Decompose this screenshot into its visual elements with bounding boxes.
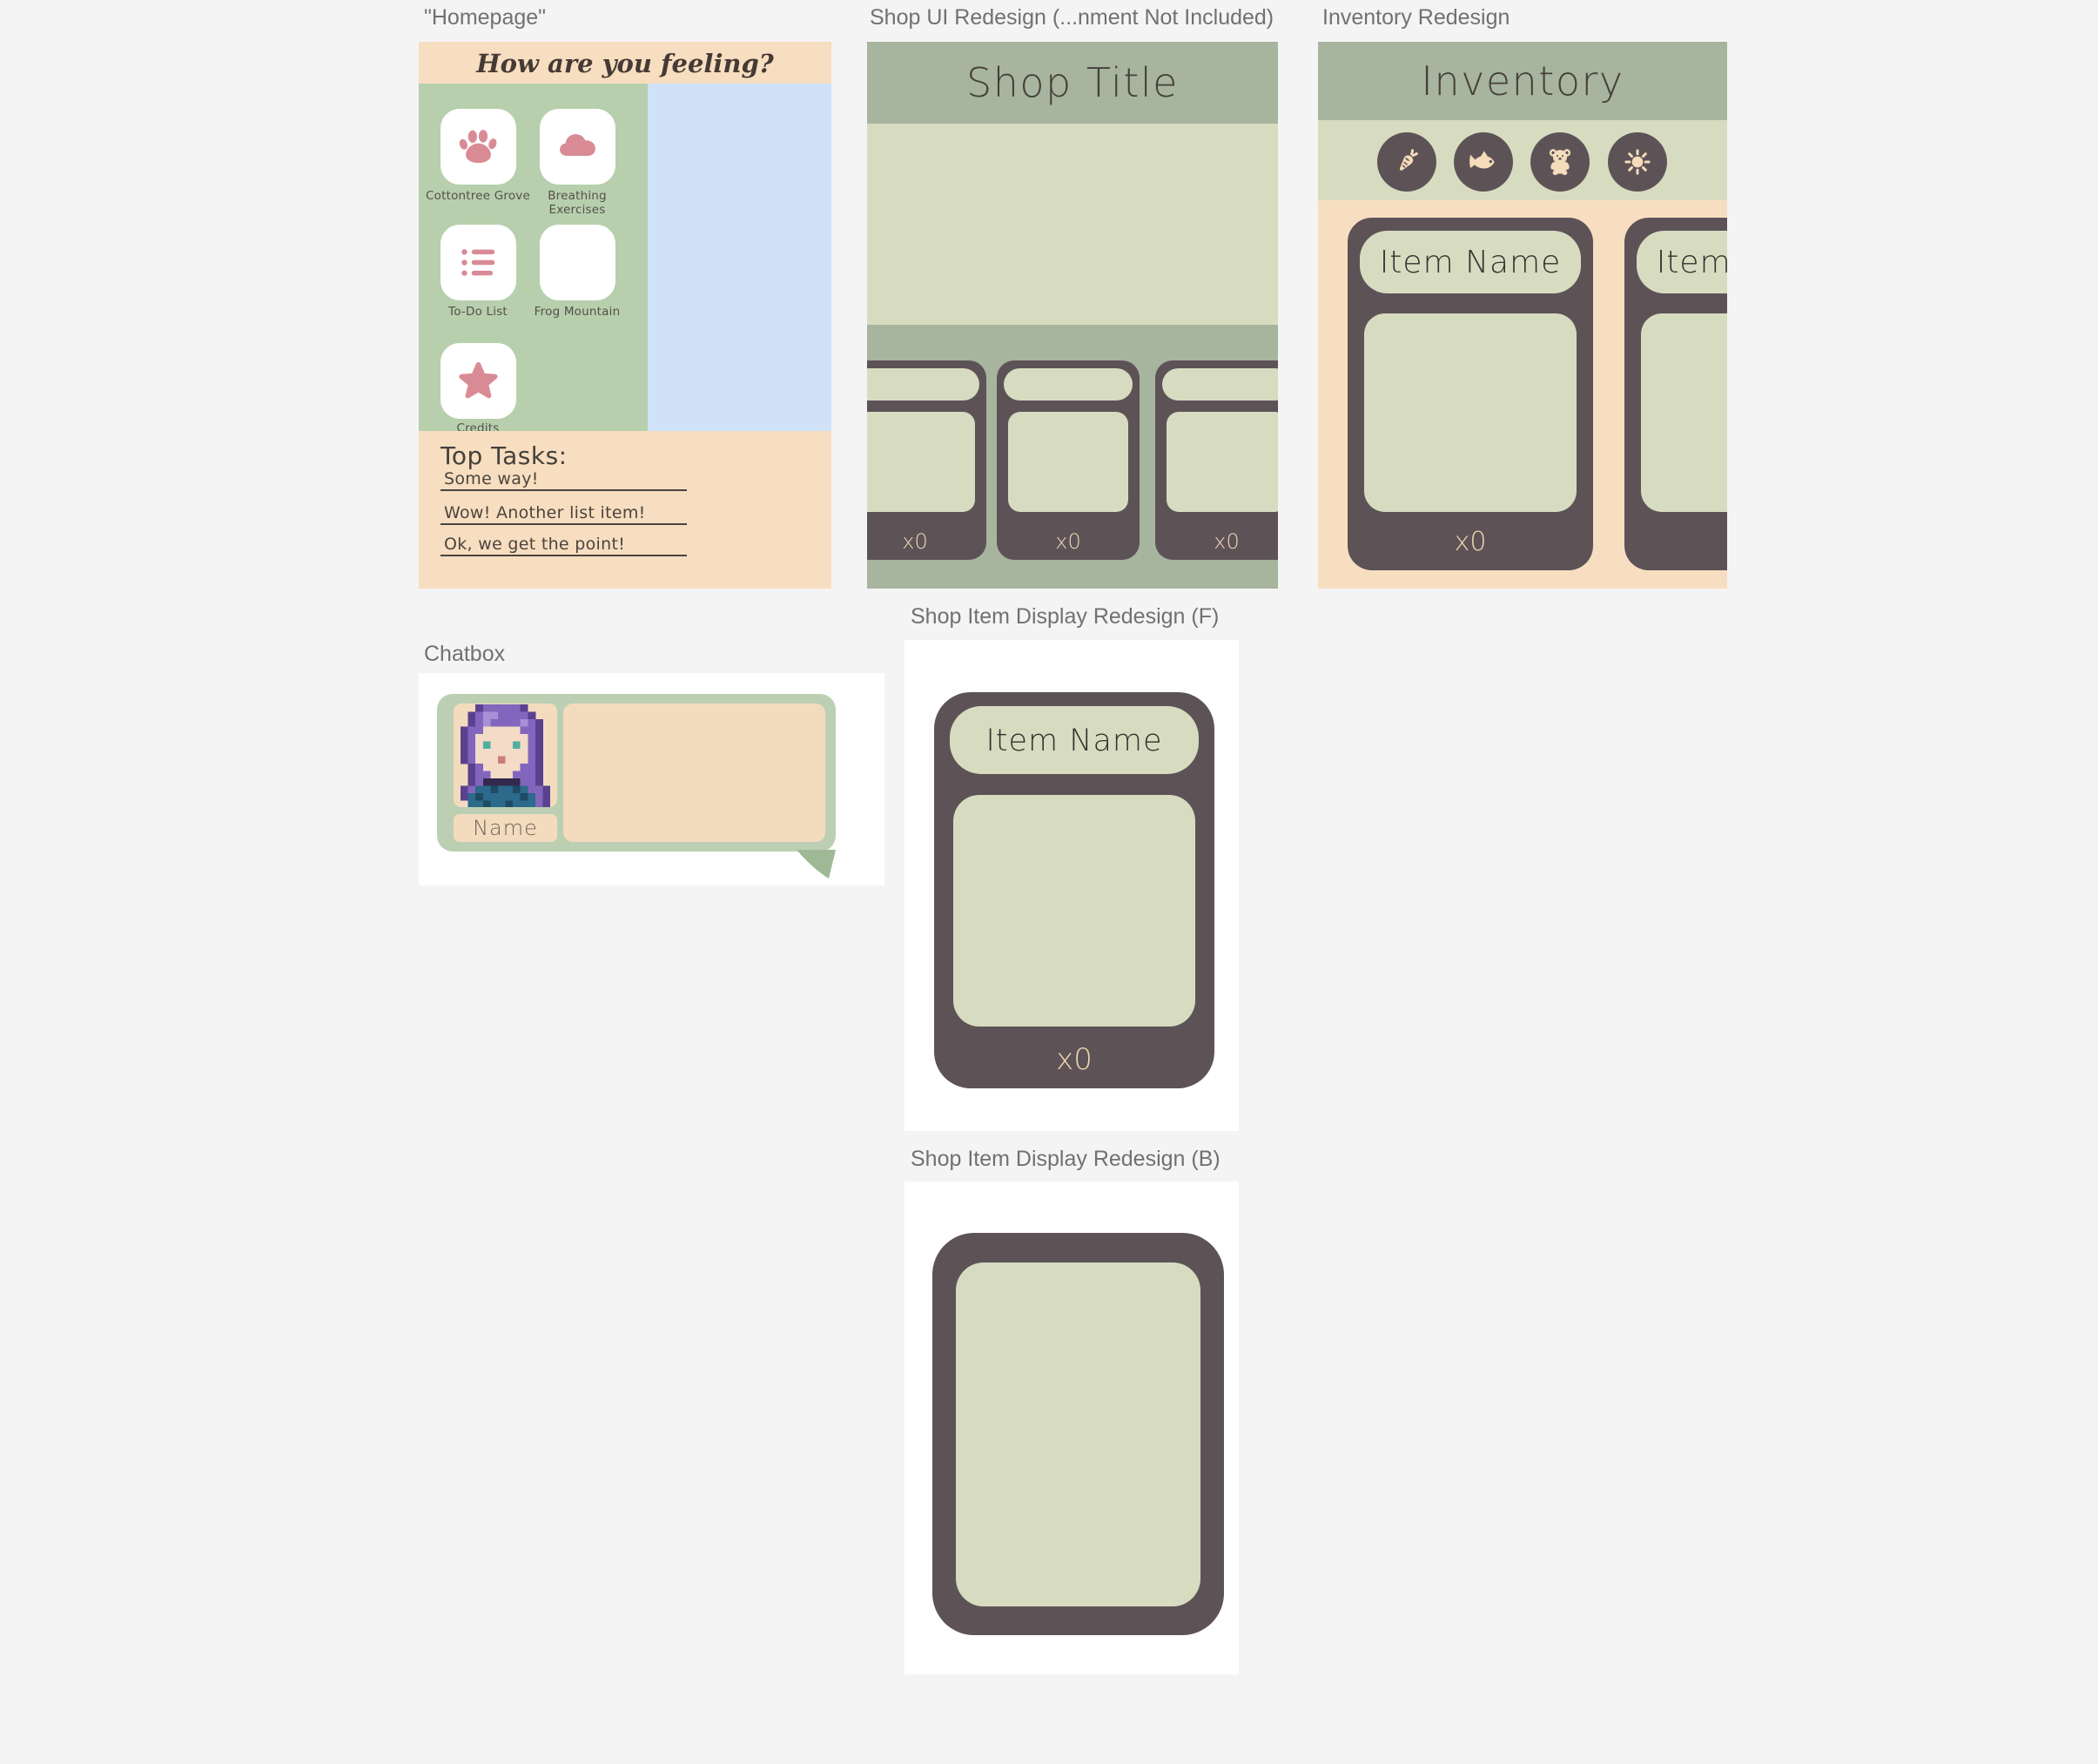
shop-title: Shop Title <box>867 42 1278 124</box>
item-name-pill: Item Name <box>1637 231 1727 293</box>
item-quantity: x0 <box>1624 527 1727 557</box>
chat-bubble: Name <box>437 694 836 852</box>
item-image-placeholder <box>1641 313 1727 512</box>
item-name-pill: Item Name <box>1360 231 1581 293</box>
item-card-front[interactable]: Item Name x0 <box>934 692 1214 1088</box>
tile-credits[interactable] <box>440 343 516 419</box>
chat-bubble-tail-icon <box>797 850 838 881</box>
tile-cottontree-grove[interactable] <box>440 109 516 185</box>
tile-label: Breathing Exercises <box>525 190 629 217</box>
item-image-placeholder <box>953 795 1195 1027</box>
item-image-placeholder <box>1167 412 1278 512</box>
homepage-content-panel <box>648 84 831 431</box>
shop-ui-frame[interactable]: Shop Title x0 x0 x0 <box>867 42 1278 589</box>
homepage-header-text: How are you feeling? <box>419 42 831 85</box>
homepage-tasks-section: Top Tasks: Some way! Wow! Another list i… <box>419 431 831 589</box>
category-carrot-button[interactable] <box>1377 132 1436 192</box>
tile-label: To-Do List <box>426 306 530 320</box>
cloud-icon <box>555 124 601 170</box>
item-name-pill <box>867 368 979 401</box>
item-name-pill <box>1162 368 1278 401</box>
item-image-placeholder <box>1364 313 1577 512</box>
sun-icon <box>1619 144 1656 180</box>
item-quantity: x0 <box>1348 527 1593 557</box>
shop-item-card[interactable]: x0 <box>867 360 986 560</box>
item-image-placeholder <box>867 412 975 512</box>
tile-breathing-exercises[interactable] <box>540 109 615 185</box>
task-item[interactable]: Wow! Another list item! <box>440 503 687 525</box>
inventory-frame-label[interactable]: Inventory Redesign <box>1322 4 1510 30</box>
item-name: Item Name <box>1637 231 1727 295</box>
item-name-pill: Item Name <box>950 706 1199 774</box>
inventory-header: Inventory <box>1318 42 1727 120</box>
item-front-frame-label[interactable]: Shop Item Display Redesign (F) <box>911 603 1219 630</box>
item-card-back[interactable] <box>932 1233 1224 1635</box>
category-fish-button[interactable] <box>1454 132 1513 192</box>
shop-item-card[interactable]: x0 <box>1155 360 1278 560</box>
item-name: Item Name <box>1360 231 1581 295</box>
inventory-title: Inventory <box>1318 42 1727 120</box>
item-quantity: x0 <box>934 1042 1214 1077</box>
tile-to-do-list[interactable] <box>440 225 516 300</box>
card-back-inner-panel <box>956 1262 1200 1606</box>
item-display-back-frame[interactable] <box>904 1182 1239 1674</box>
item-name-pill <box>1004 368 1133 401</box>
item-back-frame-label[interactable]: Shop Item Display Redesign (B) <box>911 1146 1220 1172</box>
item-quantity: x0 <box>1155 529 1278 554</box>
task-item[interactable]: Some way! <box>440 469 687 491</box>
tile-label: Cottontree Grove <box>426 190 530 204</box>
homepage-frame[interactable]: How are you feeling? Cottontree Grove <box>419 42 831 589</box>
shop-frame-label[interactable]: Shop UI Redesign (...nment Not Included) <box>870 4 1274 30</box>
item-image-placeholder <box>1008 412 1128 512</box>
star-icon <box>455 358 501 404</box>
fish-icon <box>1465 144 1502 180</box>
chat-avatar <box>461 704 550 807</box>
item-quantity: x0 <box>997 529 1140 554</box>
item-quantity: x0 <box>867 529 986 554</box>
tasks-heading: Top Tasks: <box>440 441 568 470</box>
chat-name-plate[interactable]: Name <box>454 814 557 842</box>
shop-item-card[interactable]: x0 <box>997 360 1140 560</box>
chatbox-frame-label[interactable]: Chatbox <box>424 641 505 667</box>
inventory-category-bar <box>1318 120 1727 200</box>
task-item[interactable]: Ok, we get the point! <box>440 535 687 556</box>
list-icon <box>455 239 501 286</box>
tile-label: Credits <box>426 422 530 431</box>
homepage-frame-label[interactable]: "Homepage" <box>424 4 546 30</box>
design-canvas[interactable]: "Homepage" Shop UI Redesign (...nment No… <box>0 0 2098 1764</box>
inventory-frame[interactable]: Inventory <box>1318 42 1727 589</box>
homepage-header: How are you feeling? <box>419 42 831 84</box>
homepage-menu-panel: Cottontree Grove Breathing Exercises <box>419 84 648 431</box>
tile-frog-mountain[interactable] <box>540 225 615 300</box>
item-display-front-frame[interactable]: Item Name x0 <box>904 640 1239 1131</box>
shop-body-panel <box>867 124 1278 325</box>
inventory-item-card[interactable]: Item Name x0 <box>1624 218 1727 570</box>
paw-icon <box>455 124 501 170</box>
chat-text-area[interactable] <box>563 704 825 842</box>
category-teddy-bear-button[interactable] <box>1530 132 1590 192</box>
teddy-bear-icon <box>1542 144 1578 180</box>
inventory-item-card[interactable]: Item Name x0 <box>1348 218 1593 570</box>
chat-portrait <box>454 704 557 807</box>
item-name: Item Name <box>950 706 1199 776</box>
tile-label: Frog Mountain <box>525 306 629 320</box>
chatbox-frame[interactable]: Name <box>419 673 884 885</box>
carrot-icon <box>1389 144 1425 180</box>
category-sun-button[interactable] <box>1608 132 1667 192</box>
